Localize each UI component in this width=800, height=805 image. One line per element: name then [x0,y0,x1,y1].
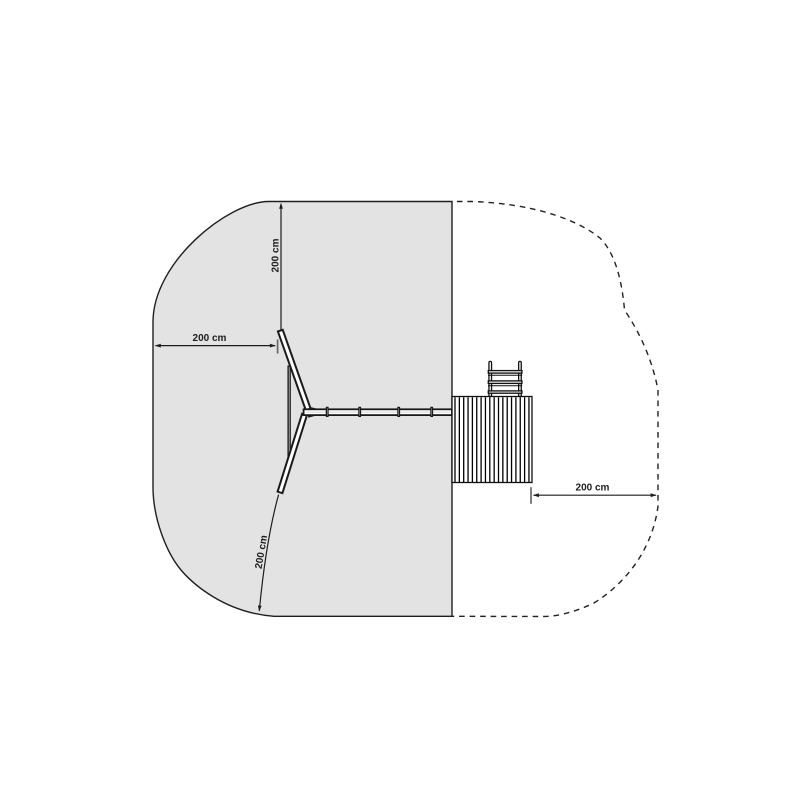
svg-text:200 cm: 200 cm [270,238,281,272]
svg-text:200 cm: 200 cm [193,333,227,344]
svg-text:200 cm: 200 cm [576,483,610,494]
